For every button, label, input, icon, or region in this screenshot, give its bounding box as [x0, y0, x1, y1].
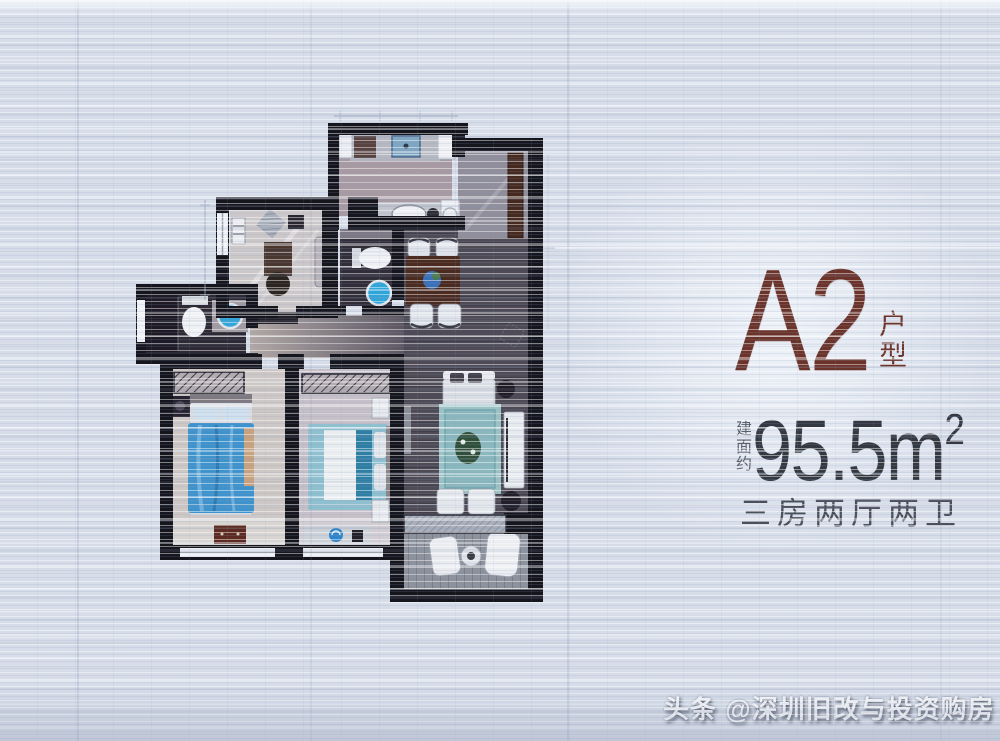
area-exponent: 2	[944, 408, 965, 452]
floor-plan	[135, 110, 550, 635]
armchair	[437, 489, 464, 514]
decor-swirl	[329, 528, 343, 542]
wardrobe	[174, 372, 244, 393]
top-light-band	[0, 0, 1000, 14]
lounge-chair	[484, 530, 521, 577]
crease-line	[567, 0, 569, 741]
area-number: 95.5	[752, 403, 886, 499]
pillow	[374, 464, 386, 490]
shelf	[288, 215, 304, 229]
pillow	[194, 407, 220, 420]
area-unit: m	[886, 403, 944, 499]
area-value: 95.5m2	[752, 408, 965, 494]
crease-line	[555, 247, 1000, 249]
coffee-table-plant	[455, 432, 481, 464]
wash-basin	[367, 281, 391, 305]
wardrobe	[302, 374, 390, 393]
shower	[146, 295, 178, 352]
pillow	[374, 432, 386, 458]
pillow	[222, 407, 248, 420]
decor-box	[352, 530, 363, 542]
toilet-tank	[182, 296, 208, 305]
window	[137, 300, 145, 342]
unit-type-label: 户型	[879, 309, 911, 371]
sofa-cushion	[450, 373, 464, 383]
toilet	[182, 307, 206, 337]
nightstand	[372, 398, 389, 418]
duvet	[324, 430, 356, 500]
sofa-cushion	[468, 373, 482, 383]
cabinet	[339, 133, 352, 158]
armchair	[468, 489, 495, 514]
crease-line	[940, 0, 942, 741]
desk-chair	[266, 272, 290, 296]
sofa	[443, 379, 495, 407]
lounge-chair	[428, 535, 461, 577]
balcony-sliding-door	[404, 515, 506, 533]
bottom-shade-band	[0, 686, 1000, 741]
dresser	[214, 525, 246, 544]
tv	[404, 406, 411, 454]
bed-headboard	[190, 394, 252, 403]
throw-blanket	[244, 428, 254, 486]
bed-runner	[356, 430, 372, 500]
bath-ledge	[340, 229, 392, 239]
crease-line	[77, 0, 79, 741]
plant	[497, 380, 515, 398]
desk	[264, 242, 292, 276]
layout-summary: 三房两厅两卫	[740, 488, 962, 533]
entry-door-panel	[508, 153, 523, 238]
floorplan-poster: A2 户型 建面约 95.5m2 三房两厅两卫 头条 @深圳旧改与投资购房	[0, 0, 1000, 741]
plant	[501, 491, 521, 511]
unit-name: A2	[735, 238, 870, 403]
crease-line	[310, 0, 312, 741]
nightstand	[372, 500, 389, 522]
cutting-board	[354, 136, 376, 158]
toilet	[359, 247, 391, 269]
